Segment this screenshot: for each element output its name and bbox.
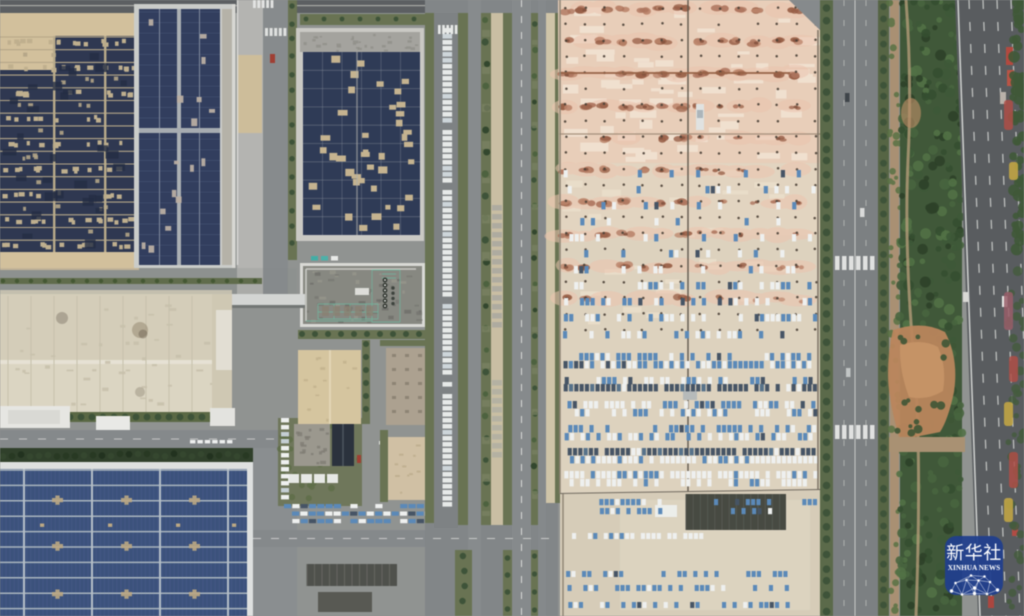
svg-text:新华社: 新华社: [946, 543, 1002, 563]
svg-text:XINHUA NEWS: XINHUA NEWS: [948, 563, 1001, 572]
